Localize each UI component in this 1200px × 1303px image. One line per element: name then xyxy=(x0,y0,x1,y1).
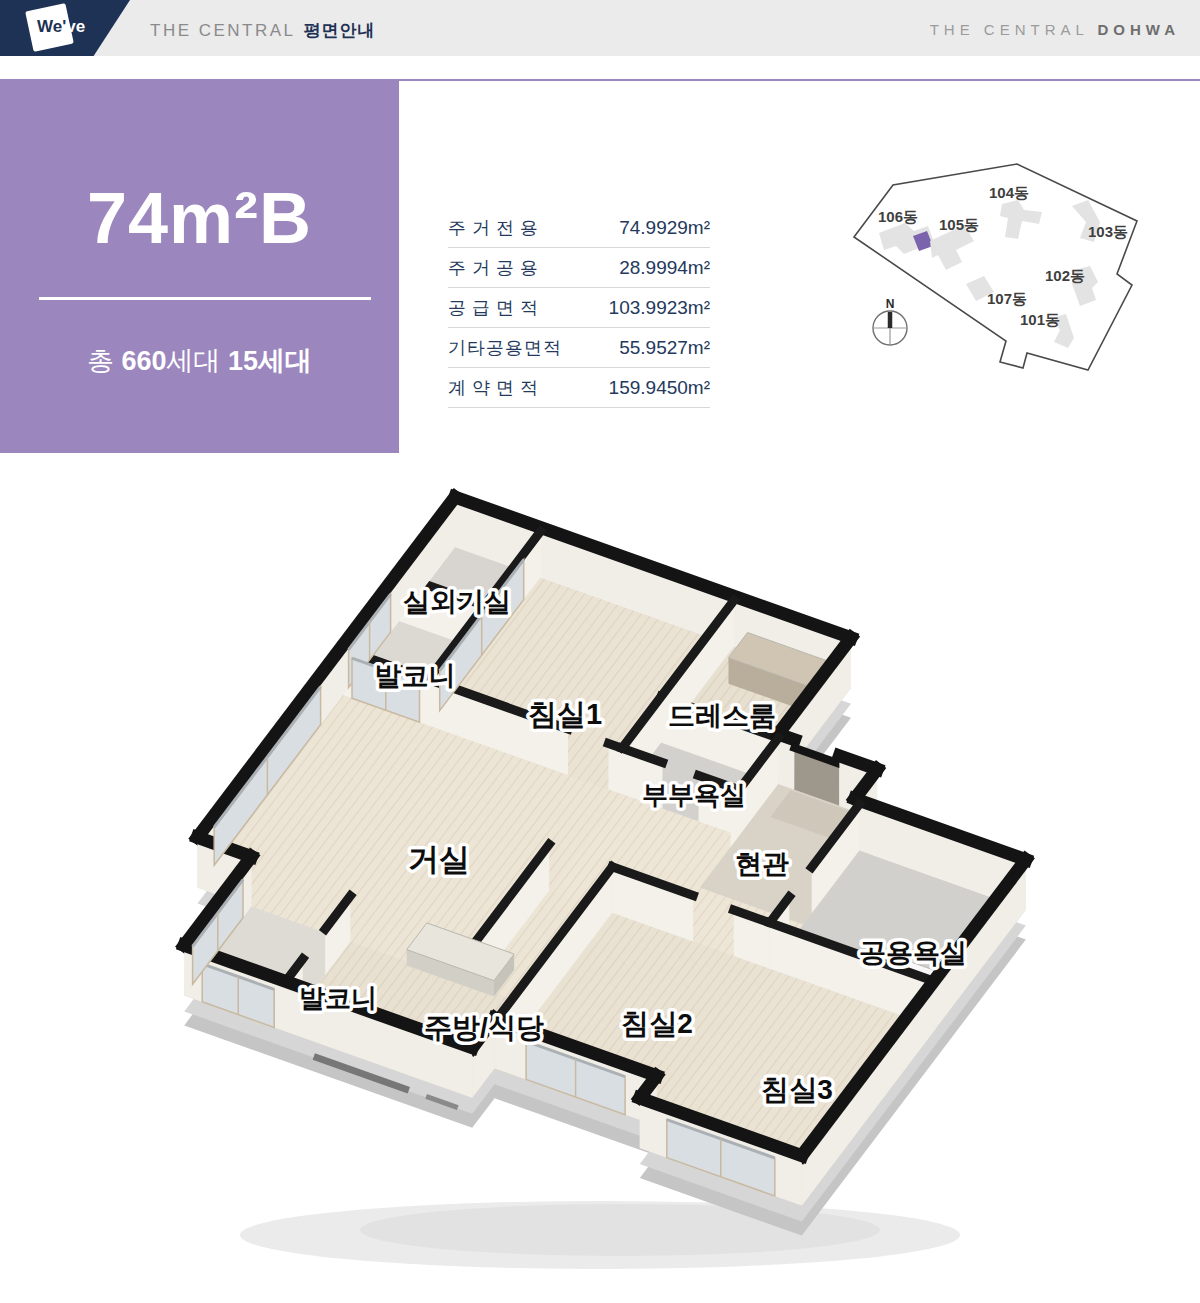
room-label: 발코니 xyxy=(299,983,377,1013)
room-label: 드레스룸 xyxy=(668,701,776,731)
room-label: 부부욕실 xyxy=(642,780,746,810)
room-label: 현관 xyxy=(735,849,789,879)
room-label: 공용욕실 xyxy=(859,938,967,968)
floor-plan: 실외기실발코니침실1드레스룸부부욕실거실현관공용욕실발코니주방/식당침실2침실3 xyxy=(0,0,1200,1303)
room-label: 주방/식당 xyxy=(424,1012,544,1043)
room-label: 침실2 xyxy=(621,1008,693,1039)
page: We've THE CENTRAL평면안내 THE CENTRAL DOHWA … xyxy=(0,0,1200,1303)
room-label: 침실3 xyxy=(761,1074,833,1105)
room-label: 발코니 xyxy=(375,661,456,691)
room-label: 거실 xyxy=(408,842,470,877)
room-label: 침실1 xyxy=(528,698,602,730)
room-label: 실외기실 xyxy=(403,587,511,617)
